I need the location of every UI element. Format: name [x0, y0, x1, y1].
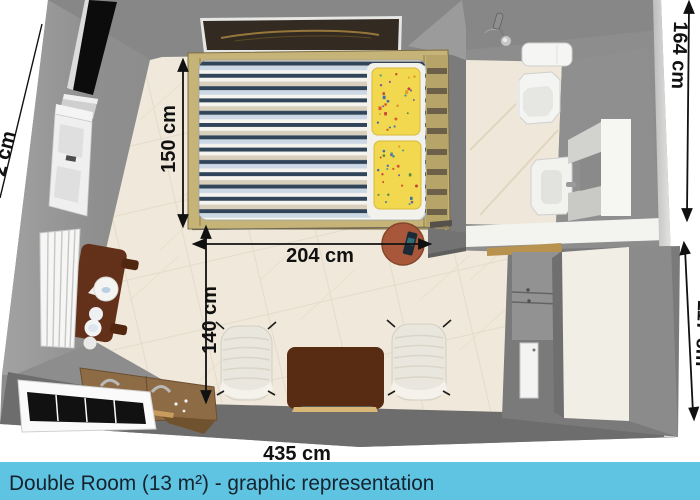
svg-text:435 cm: 435 cm [263, 443, 331, 465]
svg-text:140 cm: 140 cm [199, 286, 221, 354]
svg-text:164 cm: 164 cm [667, 21, 691, 90]
svg-text:150 cm: 150 cm [158, 105, 180, 173]
svg-text:Double Room (13 m²) - graphic: Double Room (13 m²) - graphic representa… [9, 472, 434, 495]
svg-text:204 cm: 204 cm [286, 245, 354, 267]
